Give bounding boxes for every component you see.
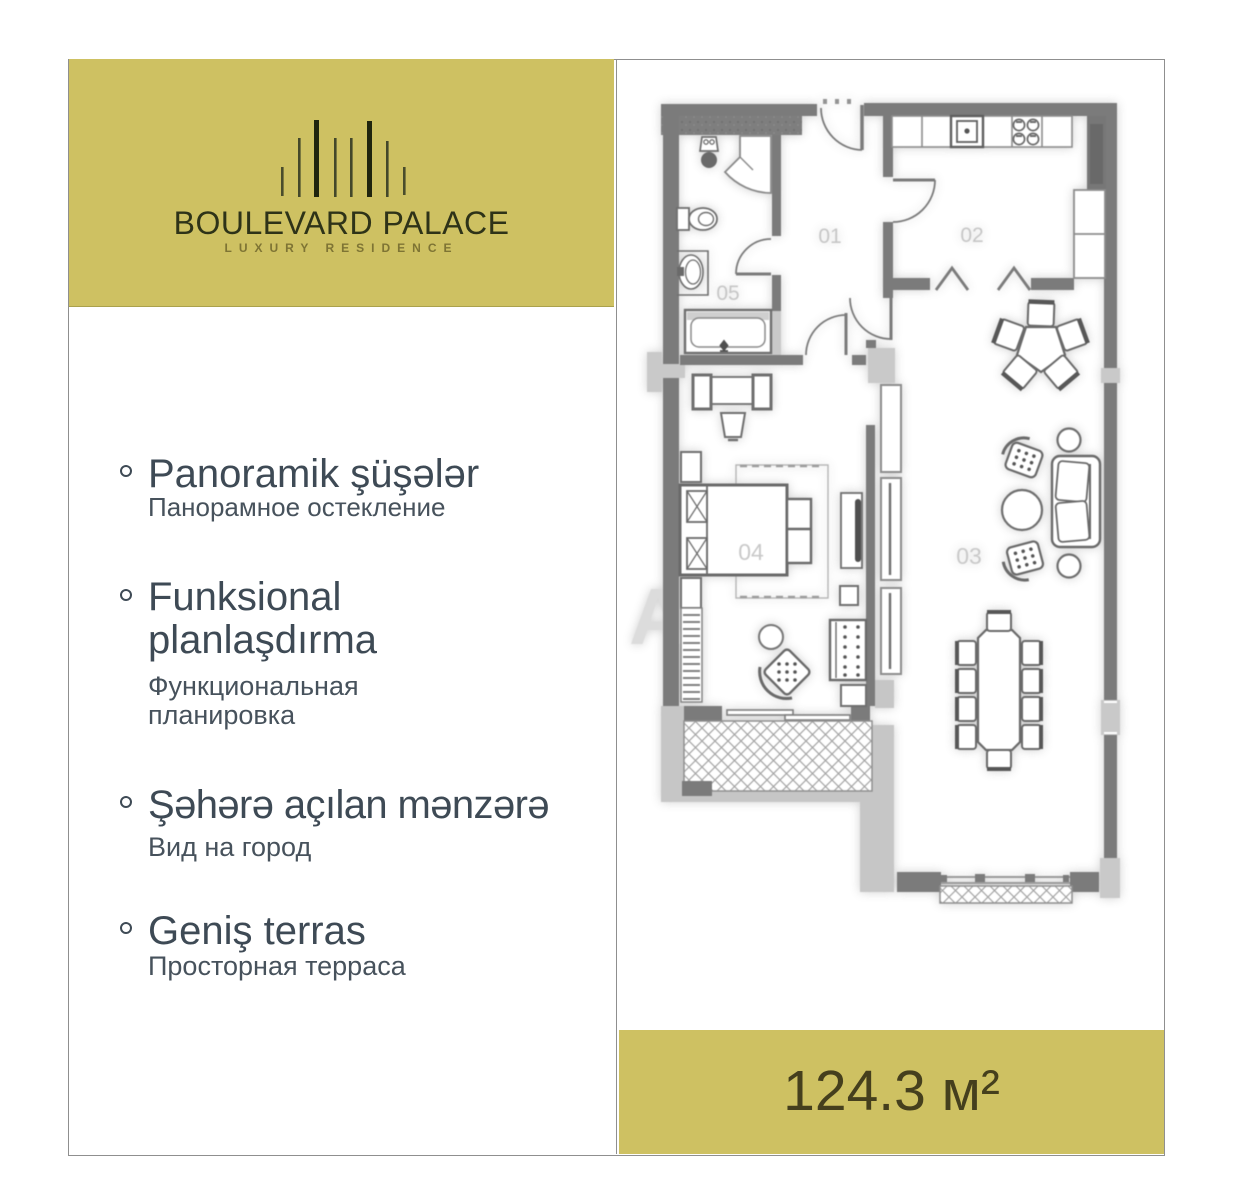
svg-text:05: 05 bbox=[716, 282, 739, 305]
svg-text:02: 02 bbox=[960, 224, 983, 247]
svg-text:03: 03 bbox=[956, 543, 982, 569]
svg-text:01: 01 bbox=[818, 225, 841, 248]
svg-text:04: 04 bbox=[738, 539, 764, 565]
